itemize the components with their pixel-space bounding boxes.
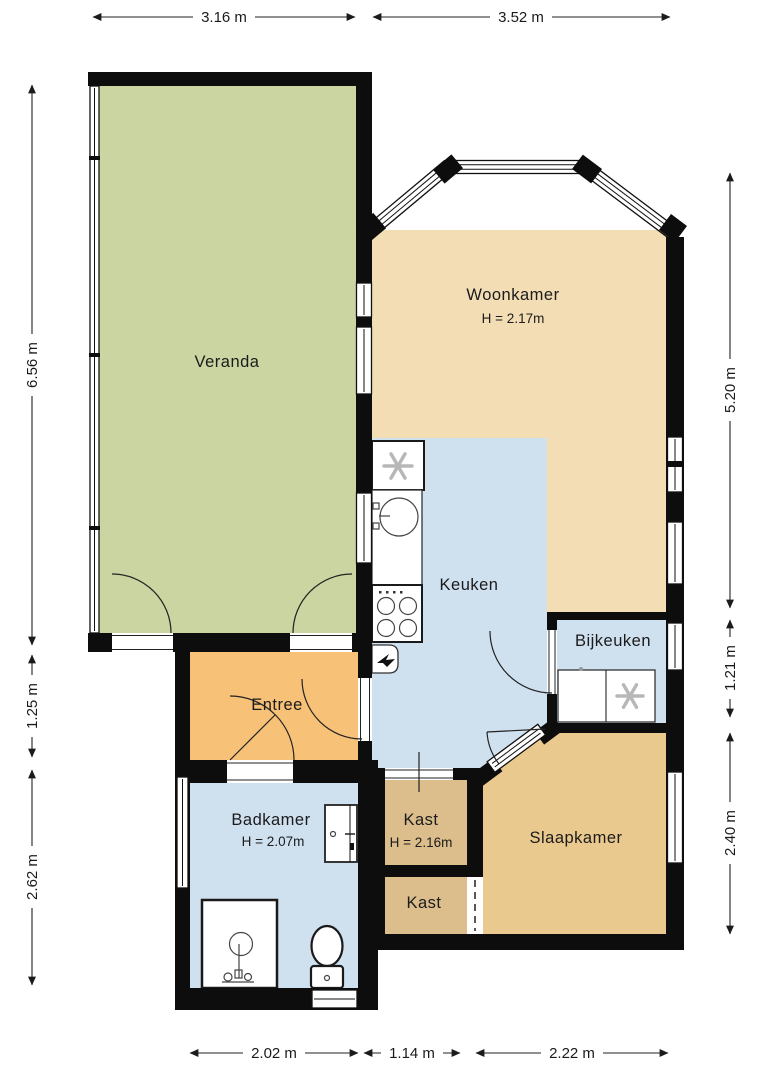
window-badkamer-bottom (312, 990, 357, 1008)
dimension-right-middle: 1.21 m (721, 620, 740, 717)
svg-text:1.25 m: 1.25 m (24, 683, 41, 729)
window-woonkamer-right-1 (667, 437, 683, 492)
entree-label: Entree (251, 696, 303, 714)
wall-bijkeuken-slaapkamer (547, 723, 684, 733)
wall-badkamer-kast-lower (358, 950, 378, 990)
window-veranda-woonkamer-1 (357, 283, 372, 317)
floor-plan-svg: Veranda Woonkamer H = 2.17m Keuken Bijke… (0, 0, 763, 1080)
sink-icon (372, 490, 422, 585)
wall-bottom-slaapkamer (365, 934, 683, 950)
kast1-label: Kast (403, 811, 438, 829)
svg-text:2.22 m: 2.22 m (549, 1045, 595, 1062)
utility-counter (558, 667, 655, 722)
svg-text:3.16 m: 3.16 m (201, 9, 247, 26)
svg-text:2.02 m: 2.02 m (251, 1045, 297, 1062)
woonkamer-height-label: H = 2.17m (482, 311, 545, 326)
slaapkamer-label: Slaapkamer (529, 829, 622, 847)
floor-plan-page: Veranda Woonkamer H = 2.17m Keuken Bijke… (0, 0, 763, 1080)
boiler-icon (372, 645, 398, 673)
dimension-right-bottom: 2.40 m (721, 733, 740, 934)
window-woonkamer-right-2 (668, 522, 683, 584)
wall-veranda-top (88, 72, 372, 86)
bijkeuken-label: Bijkeuken (575, 632, 651, 650)
wall-kast-divider (373, 865, 467, 877)
kast1-height-label: H = 2.16m (390, 835, 453, 850)
window-veranda-left (89, 86, 100, 633)
wall-badkamer-kast (358, 770, 385, 950)
svg-text:6.56 m: 6.56 m (24, 342, 41, 388)
window-veranda-keuken (357, 493, 372, 563)
badkamer-height-label: H = 2.07m (242, 834, 305, 849)
window-slaapkamer-right (668, 772, 683, 863)
stove-icon (372, 585, 422, 642)
door-opening-keuken-bijkeuken (547, 630, 557, 694)
door-folding-kast-slaapkamer (467, 877, 483, 934)
door-leaf-badkamer (325, 805, 357, 862)
window-veranda-woonkamer-2 (357, 327, 372, 394)
keuken-label: Keuken (440, 576, 499, 594)
wall-kast-right (467, 768, 483, 877)
door-opening-veranda-right (290, 633, 352, 652)
svg-text:2.62 m: 2.62 m (24, 854, 41, 900)
dimension-top-right: 3.52 m (373, 8, 670, 27)
kast2-label: Kast (406, 894, 441, 912)
shower-icon (202, 900, 277, 988)
svg-text:1.14 m: 1.14 m (389, 1045, 435, 1062)
door-opening-veranda-left (112, 633, 173, 652)
svg-text:5.20 m: 5.20 m (722, 367, 739, 413)
dimension-left-bottom: 2.62 m (23, 770, 42, 985)
dimension-bottom-middle: 1.14 m (364, 1044, 460, 1063)
dimension-top-left: 3.16 m (93, 8, 355, 27)
window-badkamer-left (177, 777, 188, 888)
dimension-bottom-left: 2.02 m (190, 1044, 358, 1063)
veranda-label: Veranda (195, 353, 260, 371)
svg-text:1.21 m: 1.21 m (722, 645, 739, 691)
dimension-left-top: 6.56 m (23, 85, 42, 645)
bay-window (358, 154, 687, 242)
badkamer-label: Badkamer (231, 811, 310, 829)
fridge-icon (372, 441, 424, 490)
wall-woonkamer-bijkeuken (547, 612, 666, 620)
svg-text:3.52 m: 3.52 m (498, 9, 544, 26)
svg-text:2.40 m: 2.40 m (722, 810, 739, 856)
dimension-bottom-right: 2.22 m (476, 1044, 668, 1063)
bay-window-center (449, 161, 586, 174)
door-opening-entree-keuken (358, 678, 372, 741)
toilet-icon (311, 926, 343, 988)
woonkamer-label: Woonkamer (466, 286, 559, 304)
door-opening-entree-badkamer (227, 760, 293, 783)
dimension-left-middle: 1.25 m (23, 655, 42, 757)
window-bijkeuken-right (668, 623, 683, 670)
dimension-right-top: 5.20 m (721, 173, 740, 608)
